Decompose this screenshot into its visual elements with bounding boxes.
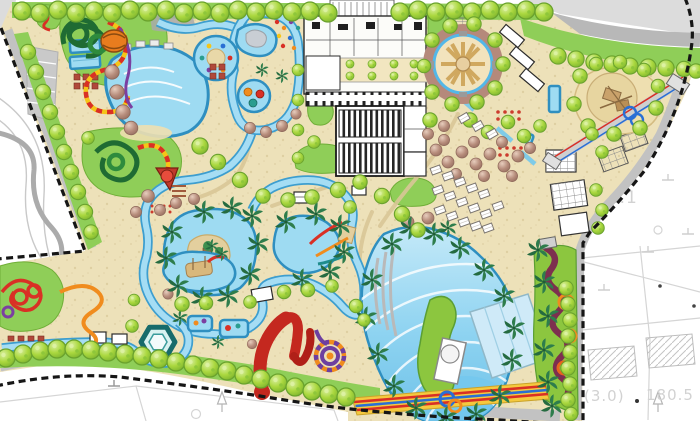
foliage-tree-icon	[142, 190, 155, 203]
tree-icon	[349, 299, 363, 313]
tree-icon	[607, 127, 621, 141]
tree-icon	[488, 33, 502, 47]
tree-icon	[633, 121, 647, 135]
tree-icon	[689, 64, 700, 78]
tree-icon	[346, 60, 354, 68]
tree-icon	[586, 128, 599, 141]
tree-icon	[20, 44, 35, 59]
tree-icon	[590, 184, 603, 197]
colonnade	[306, 92, 426, 106]
tree-icon	[139, 3, 157, 21]
tree-icon	[283, 3, 301, 21]
tree-icon	[128, 294, 140, 306]
tree-icon	[563, 345, 577, 359]
foliage-tree-icon	[124, 121, 138, 135]
foliage-tree-icon	[438, 120, 449, 131]
tree-icon	[35, 84, 50, 99]
tree-icon	[201, 359, 219, 377]
tree-icon	[49, 124, 64, 139]
tree-icon	[613, 55, 627, 69]
tree-icon	[330, 182, 345, 197]
tree-icon	[77, 204, 92, 219]
tree-icon	[658, 60, 674, 76]
tree-icon	[99, 343, 117, 361]
foliage-tree-icon	[247, 339, 257, 349]
tree-icon	[150, 350, 168, 368]
tree-icon	[496, 57, 510, 71]
tree-icon	[561, 361, 575, 375]
tree-icon	[56, 144, 71, 159]
foliage-tree-icon	[291, 109, 301, 119]
foliage-tree-icon	[484, 148, 496, 160]
tree-icon	[28, 64, 43, 79]
foliage-tree-icon	[116, 105, 130, 119]
foliage-tree-icon	[468, 136, 479, 147]
tree-icon	[292, 64, 304, 76]
tree-icon	[232, 172, 247, 187]
tree-icon	[445, 97, 459, 111]
tree-icon	[235, 366, 253, 384]
tree-icon	[445, 1, 463, 19]
tree-icon	[265, 1, 283, 19]
tree-icon	[0, 349, 15, 367]
tree-icon	[103, 4, 121, 22]
tree-icon	[568, 51, 584, 67]
tree-icon	[337, 388, 355, 406]
tree-icon	[410, 60, 418, 68]
foliage-tree-icon	[498, 160, 510, 172]
tree-icon	[470, 95, 484, 109]
tree-icon	[517, 129, 531, 143]
foliage-tree-icon	[422, 212, 434, 224]
tree-icon	[85, 2, 103, 20]
tree-icon	[596, 146, 609, 159]
tree-icon	[394, 206, 409, 221]
tree-icon	[488, 81, 502, 95]
tree-icon	[70, 184, 85, 199]
foliage-tree-icon	[110, 85, 124, 99]
tree-icon	[425, 85, 439, 99]
tree-icon	[563, 313, 577, 327]
resort-lap-pool	[549, 86, 560, 112]
tree-icon	[229, 1, 247, 19]
foliage-tree-icon	[430, 144, 442, 156]
tree-icon	[374, 188, 389, 203]
tree-icon	[561, 393, 575, 407]
tree-icon	[467, 17, 481, 31]
tree-icon	[269, 374, 287, 392]
kids-elephant-pool	[236, 24, 276, 56]
tree-icon	[31, 4, 49, 22]
tree-icon	[286, 378, 304, 396]
survey-label-3: 180.5	[646, 386, 694, 404]
tree-icon	[319, 4, 337, 22]
foliage-tree-icon	[105, 65, 119, 79]
spiral-funnel-slide	[101, 30, 127, 52]
tree-icon	[14, 345, 32, 363]
tree-icon	[573, 69, 587, 83]
tree-icon	[567, 97, 581, 111]
tree-icon	[427, 3, 445, 21]
tree-icon	[346, 72, 354, 80]
tree-icon	[358, 314, 371, 327]
tree-icon	[589, 57, 603, 71]
tree-icon	[481, 1, 499, 19]
foliage-tree-icon	[438, 134, 449, 145]
hatched-parcel	[646, 334, 695, 368]
tree-icon	[561, 329, 575, 343]
tree-icon	[499, 3, 517, 21]
foliage-tree-icon	[524, 142, 535, 153]
foliage-tree-icon	[130, 206, 141, 217]
hatched-parcel	[588, 346, 637, 380]
tree-icon	[410, 72, 418, 80]
tree-icon	[344, 201, 357, 214]
tree-icon	[501, 115, 515, 129]
tree-icon	[121, 1, 139, 19]
foliage-tree-icon	[478, 170, 489, 181]
tree-icon	[126, 320, 139, 333]
foliage-tree-icon	[512, 150, 524, 162]
tree-icon	[210, 154, 225, 169]
tree-icon	[193, 2, 211, 20]
tree-icon	[550, 48, 566, 64]
tree-icon	[82, 341, 100, 359]
tree-icon	[561, 297, 575, 311]
tree-icon	[31, 342, 49, 360]
tree-icon	[390, 72, 398, 80]
tree-icon	[292, 124, 304, 136]
tree-icon	[67, 4, 85, 22]
tree-icon	[535, 3, 553, 21]
kids-mushroom-pool	[238, 80, 270, 112]
survey-point	[635, 399, 639, 403]
tree-icon	[247, 3, 265, 21]
tree-icon	[301, 2, 319, 20]
tree-icon	[564, 407, 578, 421]
foliage-tree-icon	[470, 158, 482, 170]
tree-icon	[49, 1, 67, 19]
tree-icon	[320, 385, 338, 403]
survey-label-2: (3.0)	[584, 387, 625, 405]
tree-icon	[411, 223, 425, 237]
surf-dome	[441, 345, 459, 363]
tree-icon	[517, 1, 535, 19]
survey-point	[692, 304, 696, 308]
tree-icon	[637, 63, 651, 77]
tree-icon	[48, 340, 66, 358]
tree-icon	[84, 225, 98, 239]
tree-icon	[303, 382, 321, 400]
foliage-tree-icon	[276, 120, 287, 131]
master-plan-canvas: 84.1 (3.0) 180.5	[0, 0, 700, 421]
tree-icon	[277, 285, 291, 299]
foliage-tree-icon	[188, 193, 199, 204]
tree-icon	[423, 113, 437, 127]
tree-icon	[425, 33, 439, 47]
tree-icon	[649, 101, 663, 115]
tree-icon	[63, 164, 78, 179]
tree-icon	[292, 94, 304, 106]
play-ship	[185, 260, 213, 277]
tree-icon	[390, 60, 398, 68]
foliage-tree-icon	[170, 197, 181, 208]
tree-icon	[218, 362, 236, 380]
foliage-tree-icon	[496, 136, 507, 147]
tree-icon	[308, 136, 321, 149]
foliage-tree-icon	[442, 156, 454, 168]
tree-icon	[443, 19, 457, 33]
tree-icon	[292, 152, 304, 164]
tree-icon	[116, 345, 134, 363]
tree-icon	[133, 347, 151, 365]
foliage-tree-icon	[506, 170, 517, 181]
foliage-tree-icon	[456, 146, 468, 158]
tree-icon	[651, 79, 665, 93]
tree-icon	[252, 370, 270, 388]
tree-icon	[326, 280, 339, 293]
tree-icon	[175, 4, 193, 22]
foliage-tree-icon	[260, 126, 271, 137]
tree-icon	[211, 4, 229, 22]
tree-icon	[563, 377, 577, 391]
tree-icon	[368, 60, 376, 68]
tree-icon	[256, 189, 270, 203]
tree-icon	[184, 356, 202, 374]
tree-icon	[409, 1, 427, 19]
foliage-tree-icon	[154, 204, 165, 215]
site-plan-svg: 84.1 (3.0) 180.5	[0, 0, 700, 421]
tree-icon	[281, 193, 295, 207]
tree-icon	[559, 281, 573, 295]
tree-icon	[82, 132, 95, 145]
tree-icon	[192, 138, 208, 154]
tree-icon	[353, 175, 367, 189]
tree-icon	[167, 353, 185, 371]
tree-icon	[534, 120, 547, 133]
foliage-tree-icon	[244, 122, 255, 133]
tree-icon	[157, 1, 175, 19]
tree-icon	[301, 283, 315, 297]
survey-point	[658, 284, 662, 288]
tree-icon	[175, 297, 189, 311]
tree-icon	[596, 204, 609, 217]
tree-icon	[42, 104, 57, 119]
tree-icon	[391, 3, 409, 21]
tree-icon	[368, 72, 376, 80]
tree-icon	[13, 2, 31, 20]
tree-icon	[199, 296, 213, 310]
tree-icon	[65, 340, 83, 358]
tree-icon	[244, 296, 257, 309]
tree-icon	[417, 59, 431, 73]
foliage-tree-icon	[422, 128, 433, 139]
tree-icon	[305, 190, 319, 204]
